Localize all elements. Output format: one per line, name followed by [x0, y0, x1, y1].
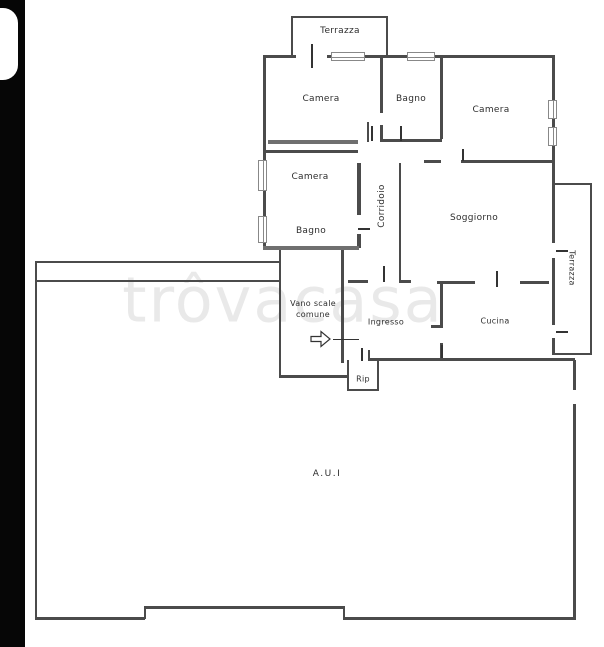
room-label-aui: A.U.I: [313, 469, 341, 479]
wall-segment: [279, 375, 349, 378]
wall-segment: [347, 389, 379, 391]
wall-segment: [357, 163, 361, 215]
room-label-camera-ne: Camera: [472, 105, 509, 115]
wall-segment-thick: [268, 140, 358, 144]
stairs-direction-arrow-icon: [310, 330, 332, 348]
wall-segment: [399, 280, 411, 283]
wall-segment: [377, 360, 379, 391]
wall-segment: [399, 163, 401, 281]
window: [331, 52, 365, 61]
wall-segment: [386, 16, 388, 57]
window: [258, 216, 267, 243]
room-label-vano-scale: Vano scale comune: [290, 298, 336, 320]
wall-segment: [440, 283, 443, 327]
wall-segment: [368, 350, 370, 358]
room-label-rip: Rip: [356, 375, 370, 384]
wall-segment: [291, 16, 293, 57]
wall-segment: [347, 360, 349, 391]
wall-segment: [552, 183, 592, 185]
door-tick: [311, 44, 313, 68]
room-label-terrazza-right: Terrazza: [568, 250, 577, 286]
door-tick: [496, 271, 498, 287]
wall-segment: [341, 248, 344, 363]
floorplan-image: trôvacasa Terrazza Camera Bagno Camera C…: [0, 0, 604, 647]
wall-segment: [343, 617, 576, 620]
window: [548, 100, 557, 119]
rounded-pill-shape: [0, 8, 18, 80]
room-label-cucina: Cucina: [480, 317, 509, 326]
wall-segment: [279, 248, 281, 377]
wall-segment: [461, 160, 553, 163]
room-label-ingresso: Ingresso: [368, 318, 404, 327]
wall-segment: [144, 608, 146, 619]
wall-segment: [552, 338, 555, 355]
room-label-camera-w: Camera: [291, 172, 328, 182]
window: [258, 160, 267, 191]
window: [548, 127, 557, 146]
room-label-soggiorno: Soggiorno: [450, 213, 498, 223]
wall-segment: [552, 55, 555, 185]
wall-segment: [590, 185, 592, 355]
room-label-terrazza-top: Terrazza: [320, 26, 360, 36]
wall-segment: [35, 280, 37, 619]
vano-scale-line2: comune: [290, 309, 336, 320]
room-label-bagno-n: Bagno: [396, 94, 426, 104]
door-tick: [556, 331, 568, 333]
door-tick: [441, 345, 443, 358]
photo-black-border-left: [0, 0, 25, 647]
wall-segment: [367, 122, 369, 142]
wall-segment: [440, 57, 443, 139]
door-tick: [358, 228, 370, 230]
room-label-camera-nw: Camera: [302, 94, 339, 104]
wall-segment: [368, 358, 575, 361]
wall-segment: [424, 160, 441, 163]
room-label-bagno-w: Bagno: [296, 226, 326, 236]
wall-segment: [552, 185, 555, 243]
wall-segment: [263, 55, 296, 58]
wall-segment: [35, 280, 281, 282]
wall-segment: [573, 360, 576, 390]
door-tick: [333, 339, 359, 340]
vano-scale-line1: Vano scale: [290, 298, 336, 309]
room-label-corridoio: Corridoio: [377, 184, 387, 227]
wall-segment: [348, 280, 368, 283]
wall-segment: [35, 617, 145, 620]
wall-segment: [380, 57, 383, 113]
wall-segment: [144, 606, 345, 609]
door-tick: [383, 266, 385, 282]
door-tick: [371, 126, 373, 141]
window: [407, 52, 435, 61]
wall-segment: [380, 139, 442, 142]
wall-segment-thick: [263, 246, 359, 250]
door-tick: [400, 126, 402, 141]
wall-segment: [552, 258, 555, 325]
wall-segment: [431, 325, 443, 328]
wall-segment: [263, 150, 358, 153]
door-tick: [462, 149, 464, 161]
wall-segment: [35, 261, 37, 282]
wall-segment: [520, 281, 549, 284]
wall-segment: [35, 261, 279, 263]
door-tick: [361, 348, 363, 361]
wall-segment: [573, 404, 576, 619]
wall-segment: [291, 16, 388, 18]
door-tick: [556, 250, 568, 252]
wall-segment: [552, 353, 592, 355]
